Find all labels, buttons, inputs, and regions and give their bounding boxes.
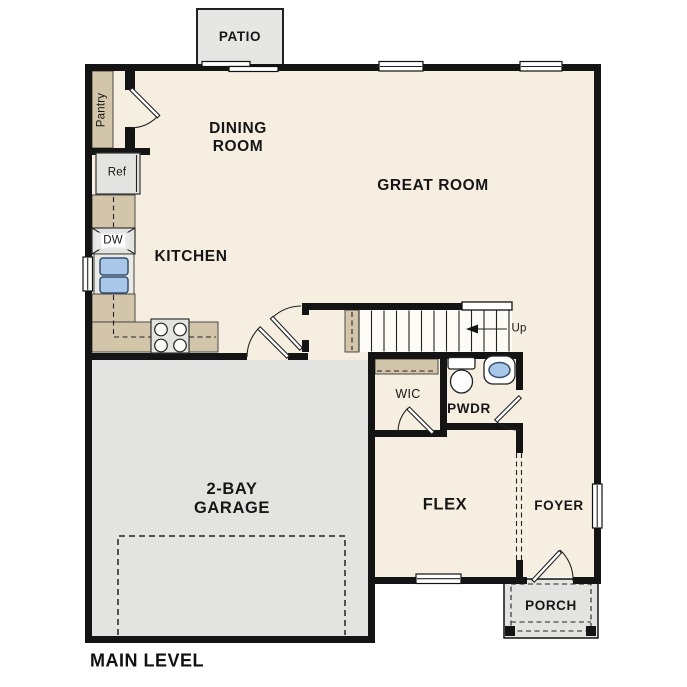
garage-label: 2-BAY GARAGE <box>186 480 278 518</box>
porch-label: PORCH <box>525 598 577 614</box>
kitchen-label: KITCHEN <box>154 248 227 266</box>
stairs-up-label: Up <box>511 322 526 335</box>
refrigerator-label: Ref <box>108 166 127 179</box>
flex-label: FLEX <box>423 496 468 515</box>
stair-landing-rail <box>462 302 512 310</box>
kitchen-sink-basin <box>100 277 128 293</box>
burner <box>174 323 187 336</box>
pantry-label: Pantry <box>95 93 108 127</box>
wall-garage-top <box>85 353 247 360</box>
wall-foyer-south <box>573 577 601 584</box>
dishwasher-label: DW <box>101 234 125 247</box>
wall-pantry-stub <box>125 71 135 90</box>
wall-garage-right <box>368 352 375 643</box>
kitchen-sink-basin <box>100 258 128 275</box>
wic-label: WIC <box>395 387 420 401</box>
wall-foyer-stub <box>516 430 523 453</box>
wall-garage-bottom <box>85 636 375 643</box>
great-room-label: GREAT ROOM <box>377 177 489 195</box>
dining-room-label: DINING ROOM <box>196 120 280 156</box>
foyer-label: FOYER <box>534 498 584 514</box>
wall-stub <box>302 340 309 352</box>
wall-flex-north <box>375 430 447 437</box>
wall-pantry-stub <box>125 127 135 148</box>
patio-slider-door <box>202 62 250 67</box>
powder-sink-basin <box>489 363 510 378</box>
floor-plan: PATIO DINING ROOM GREAT ROOM KITCHEN Pan… <box>0 0 687 687</box>
toilet-tank <box>448 358 475 370</box>
wall-stairs-north <box>302 303 462 310</box>
patio-slider-door <box>229 67 278 72</box>
powder-room-label: PWDR <box>447 401 491 417</box>
toilet-bowl <box>451 370 473 393</box>
stairs-floor <box>359 310 512 352</box>
burner <box>155 339 168 352</box>
wic-shelf <box>375 359 438 374</box>
wall-pwdr-east <box>516 352 523 390</box>
page-title: MAIN LEVEL <box>90 651 204 672</box>
porch-post <box>505 626 515 636</box>
burner <box>155 323 168 336</box>
patio-label: PATIO <box>219 29 261 45</box>
porch-post <box>586 626 596 636</box>
burner <box>174 339 187 352</box>
wall-garage-top <box>288 353 308 360</box>
